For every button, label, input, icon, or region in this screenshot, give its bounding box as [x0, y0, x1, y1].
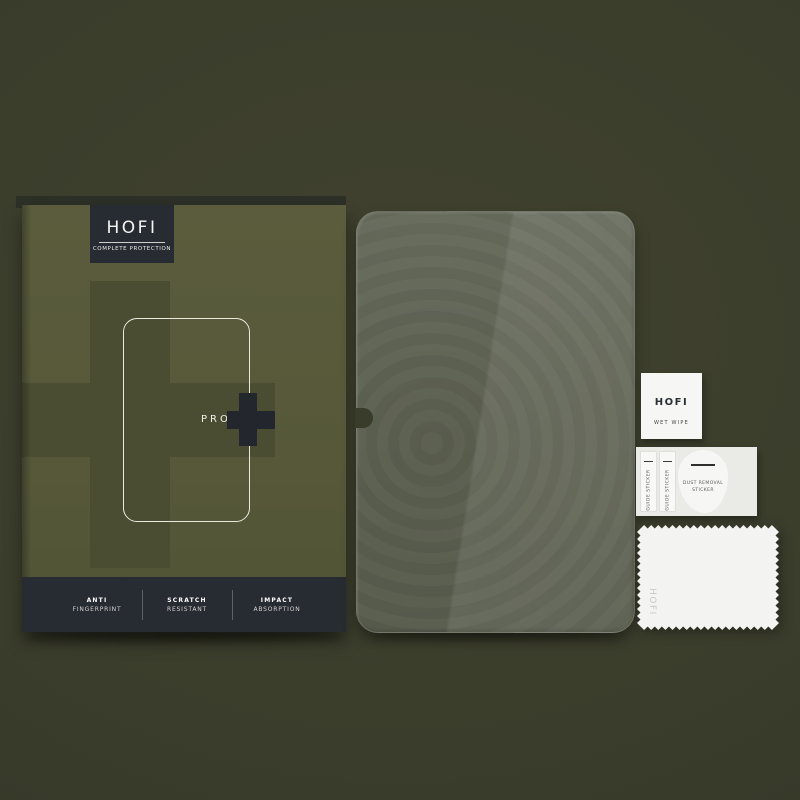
plus-icon	[227, 411, 275, 429]
sticker-pull-line	[663, 461, 672, 462]
cloth-brand-logo: HOFI	[647, 588, 657, 616]
brand-panel: HOFI COMPLETE PROTECTION	[90, 205, 174, 263]
brand-logo: HOFI	[107, 218, 158, 238]
feature-scratch-resistant: SCRATCH RESISTANT	[143, 597, 232, 613]
brand-divider	[99, 242, 165, 243]
glass-reflection-rings	[357, 212, 634, 632]
dust-removal-label-line1: DUST REMOVAL	[678, 480, 728, 487]
sticker-pull-line	[644, 461, 653, 462]
features-strip: ANTI FINGERPRINT SCRATCH RESISTANT IMPAC…	[22, 577, 346, 632]
wet-wipe-brand: HOFI	[641, 397, 702, 408]
brand-tagline: COMPLETE PROTECTION	[93, 246, 171, 252]
microfiber-cloth-wrap: HOFI	[637, 525, 779, 630]
box-spine-shading	[22, 205, 31, 632]
sticker-sheet: GUIDE STICKER GUIDE STICKER DUST REMOVAL…	[636, 447, 757, 516]
wet-wipe-packet: HOFI WET WIPE	[641, 373, 702, 439]
sticker-pull-line	[691, 464, 715, 466]
feature-impact-absorption: IMPACT ABSORPTION	[233, 597, 322, 613]
wet-wipe-label: WET WIPE	[641, 420, 702, 426]
guide-sticker: GUIDE STICKER	[660, 452, 675, 511]
dust-removal-sticker: DUST REMOVAL STICKER	[678, 450, 728, 513]
microfiber-cloth: HOFI	[637, 525, 779, 630]
features-row: ANTI FINGERPRINT SCRATCH RESISTANT IMPAC…	[53, 590, 322, 620]
feature-anti-fingerprint: ANTI FINGERPRINT	[53, 597, 142, 613]
guide-sticker: GUIDE STICKER	[641, 452, 656, 511]
product-box: HOFI COMPLETE PROTECTION PRO ANTI FINGER…	[22, 205, 346, 632]
screen-protector-glass	[356, 211, 635, 633]
dust-removal-label-line2: STICKER	[678, 487, 728, 494]
product-photo-backdrop: HOFI COMPLETE PROTECTION PRO ANTI FINGER…	[0, 0, 800, 800]
